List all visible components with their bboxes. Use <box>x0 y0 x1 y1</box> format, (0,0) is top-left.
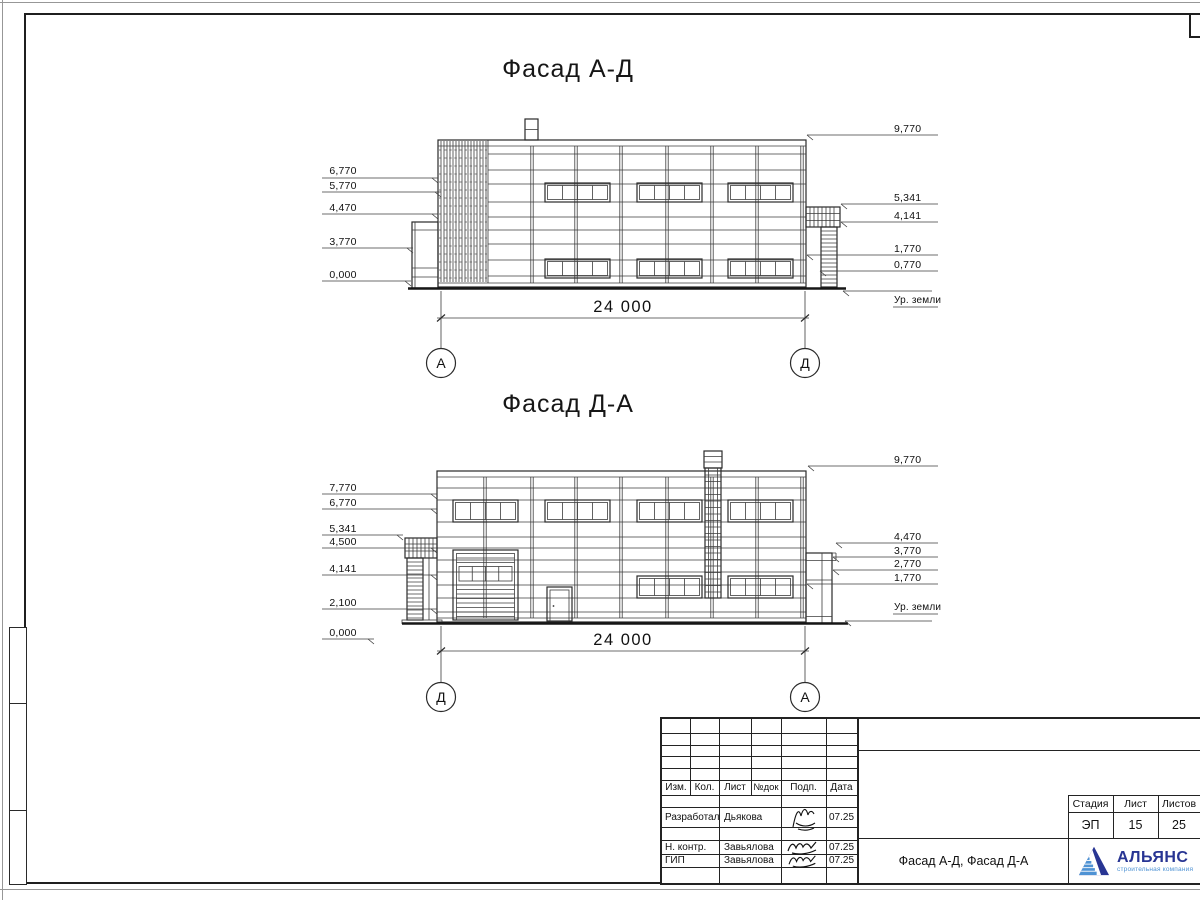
company-text: АЛЬЯНС строительная компания <box>1117 850 1193 873</box>
span-dimension: 24 000 <box>553 631 693 650</box>
axis-circle-d: Д <box>791 349 819 377</box>
rev-header-podp: Подп. <box>781 780 826 795</box>
elevation-label: 3,770 <box>320 236 366 248</box>
axis-circle-d: Д <box>427 683 455 711</box>
elevation-label: 4,141 <box>894 210 921 222</box>
staff-name: Дьякова <box>721 807 784 827</box>
drawing-title: Фасад А-Д, Фасад Д-А <box>859 838 1068 883</box>
facade1-leaders <box>322 135 938 378</box>
titleblock-grid-line <box>859 750 1200 751</box>
elevation-label: 6,770 <box>320 497 366 509</box>
signature <box>784 853 826 868</box>
elevation-label: 5,770 <box>320 180 366 192</box>
elevation-label: 4,470 <box>894 531 921 543</box>
sheets-total: 25 <box>1158 812 1200 838</box>
staff-name: Завьялова <box>721 840 784 854</box>
rev-header-izm: Изм. <box>662 780 690 795</box>
drawing-sheet: Фасад А-Д 6,770 5,770 4,470 3,770 0,000 … <box>0 0 1200 900</box>
staff-date: 07.25 <box>826 840 857 854</box>
staff-role: Н. контр. <box>662 840 722 854</box>
elevation-label: 0,000 <box>320 269 366 281</box>
pyramid-logo-icon <box>1078 845 1110 877</box>
elevation-label: 4,470 <box>320 202 366 214</box>
staff-role: Разработал <box>662 807 722 827</box>
stage-header: Стадия <box>1068 795 1113 812</box>
facade2-leaders <box>322 466 938 712</box>
elevation-label: 4,141 <box>320 563 366 575</box>
elevation-label: 6,770 <box>320 165 366 177</box>
title-block: Изм. Кол. Лист №док Подп. Дата Разработа… <box>660 717 1200 885</box>
ground-level-label: Ур. земли <box>894 295 941 306</box>
elevation-label: 9,770 <box>894 454 921 466</box>
facade2-title: Фасад Д-А <box>458 390 678 419</box>
elevation-label: 5,341 <box>894 192 921 204</box>
company-name: АЛЬЯНС <box>1117 850 1193 865</box>
elevation-label: 4,500 <box>320 536 366 548</box>
elevation-label: 2,100 <box>320 597 366 609</box>
facade2-building <box>402 451 848 624</box>
elevation-label: 9,770 <box>894 123 921 135</box>
facade1-title: Фасад А-Д <box>458 55 678 84</box>
rev-header-list: Лист <box>719 780 751 795</box>
titleblock-grid-line <box>660 756 859 757</box>
sheet-number: 15 <box>1113 812 1158 838</box>
sheet-header: Лист <box>1113 795 1158 812</box>
staff-role: ГИП <box>662 854 722 867</box>
titleblock-grid-line <box>660 733 859 734</box>
titleblock-grid-line <box>660 883 1200 885</box>
elevation-label: 0,000 <box>320 627 366 639</box>
elevation-label: 5,341 <box>320 523 366 535</box>
titleblock-grid-line <box>660 795 859 796</box>
elevation-label: 1,770 <box>894 243 921 255</box>
elevation-label: 0,770 <box>894 259 921 271</box>
rev-header-doc: №док <box>751 780 781 795</box>
stage-value: ЭП <box>1068 812 1113 838</box>
elevation-label: 2,770 <box>894 558 921 570</box>
titleblock-grid-line <box>660 768 859 769</box>
titleblock-grid-line <box>660 827 859 828</box>
axis-circle-a: А <box>427 349 455 377</box>
company-logo: АЛЬЯНС строительная компания <box>1078 844 1198 878</box>
span-dimension: 24 000 <box>553 298 693 317</box>
sheets-header: Листов <box>1158 795 1200 812</box>
company-tagline: строительная компания <box>1117 866 1193 873</box>
elevation-label: 7,770 <box>320 482 366 494</box>
facade1-building <box>408 119 846 289</box>
staff-name: Завьялова <box>721 854 784 867</box>
rev-header-kol: Кол. <box>690 780 719 795</box>
axis-circle-a: А <box>791 683 819 711</box>
staff-date: 07.25 <box>826 854 857 867</box>
signature <box>785 803 825 831</box>
titleblock-grid-line <box>660 745 859 746</box>
titleblock-grid-line <box>660 717 1200 719</box>
titleblock-grid-line <box>660 867 859 868</box>
elevation-label: 1,770 <box>894 572 921 584</box>
elevation-label: 3,770 <box>894 545 921 557</box>
staff-date: 07.25 <box>826 807 857 827</box>
ground-level-label: Ур. земли <box>894 602 941 613</box>
rev-header-data: Дата <box>826 780 857 795</box>
